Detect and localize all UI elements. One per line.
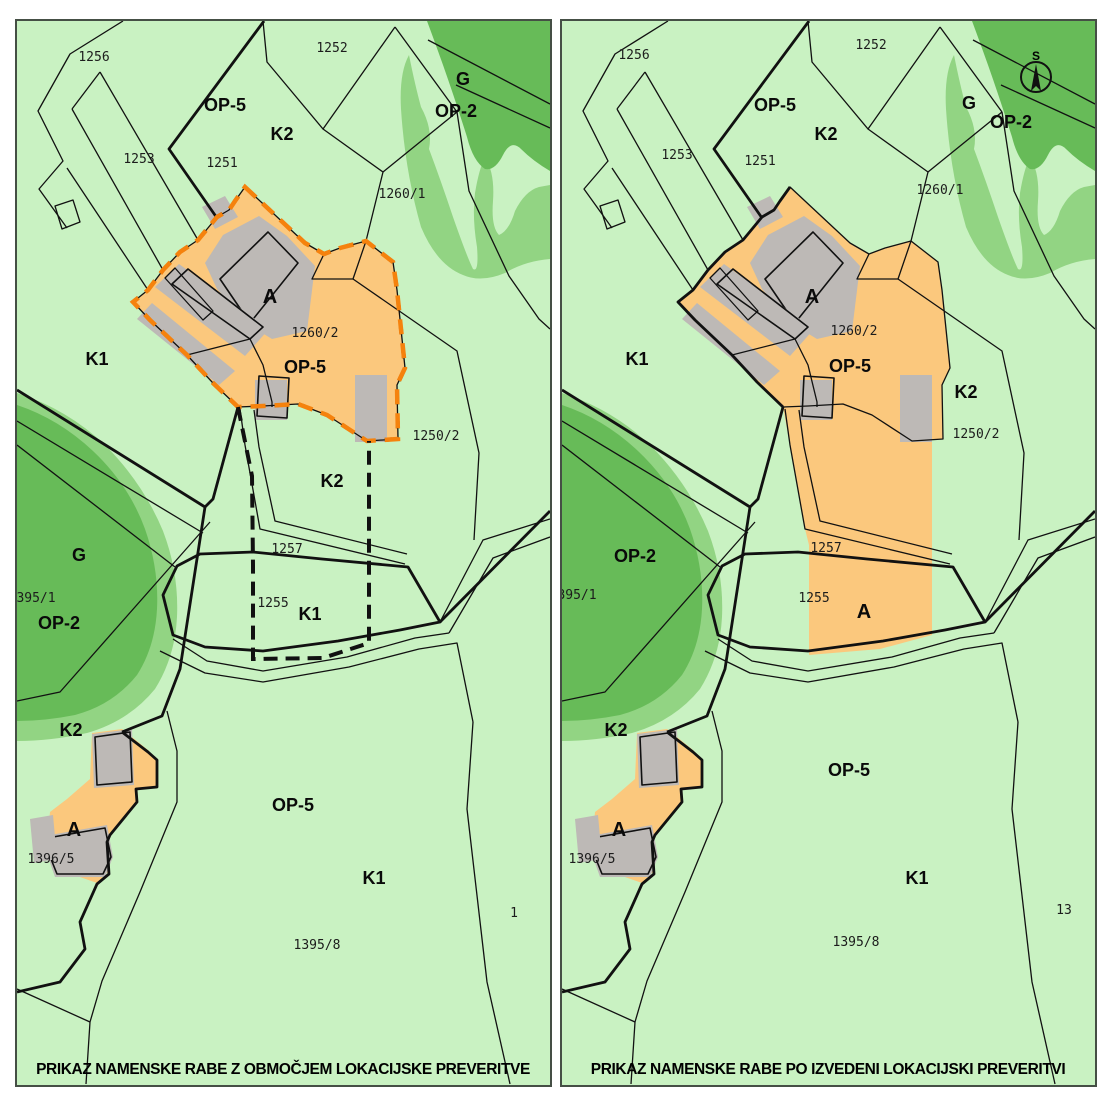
parcel-label-1255: 1255 <box>798 591 829 606</box>
zone-label-a-main: A <box>263 286 277 308</box>
right-map-svg: S OP-5 K2 G OP-2 K1 A OP-5 OP-2 K2 A K2 … <box>562 21 1095 1085</box>
parcel-label-1260-2: 1260/2 <box>831 324 878 339</box>
map-figure: OP-5 K2 G OP-2 K1 A OP-5 G OP-2 K2 K1 K2… <box>0 0 1108 1100</box>
parcel-label-1252: 1252 <box>855 38 886 53</box>
building <box>355 375 387 442</box>
parcel-label-1255: 1255 <box>257 596 288 611</box>
parcel-label-1250-2: 1250/2 <box>953 427 1000 442</box>
parcel-label-1260-1: 1260/1 <box>379 187 426 202</box>
panel-title-right: PRIKAZ NAMENSKE RABE PO IZVEDENI LOKACIJ… <box>591 1061 1066 1078</box>
zone-label-g-ne: G <box>456 69 470 89</box>
parcel-label-1396-5: 1396/5 <box>569 852 616 867</box>
parcel-label-1256: 1256 <box>618 48 649 63</box>
parcel-label-1257: 1257 <box>271 542 302 557</box>
zone-label-k1-oval: K1 <box>298 604 321 624</box>
zone-label-k1-south: K1 <box>362 868 385 888</box>
zone-label-a-sw: A <box>612 819 626 841</box>
zone-label-a-main: A <box>805 286 819 308</box>
parcel-label-1250-2: 1250/2 <box>413 429 460 444</box>
zone-label-k2-mid: K2 <box>320 471 343 491</box>
zone-label-op5-south: OP-5 <box>828 760 870 780</box>
zone-label-op5-south: OP-5 <box>272 795 314 815</box>
parcel-label-1256: 1256 <box>78 50 109 65</box>
zone-label-op2-west: OP-2 <box>38 613 80 633</box>
building <box>900 375 932 442</box>
parcel-label-1253: 1253 <box>661 148 692 163</box>
parcel-label-1260-2: 1260/2 <box>292 326 339 341</box>
parcel-label-1260-1: 1260/1 <box>917 183 964 198</box>
parcel-label-1251: 1251 <box>744 154 775 169</box>
zone-label-k2-sw: K2 <box>59 720 82 740</box>
parcel-label-1396-5: 1396/5 <box>28 852 75 867</box>
parcel-label-1257: 1257 <box>810 541 841 556</box>
zone-label-op5-top: OP-5 <box>204 95 246 115</box>
parcel-label-1252: 1252 <box>316 41 347 56</box>
parcel-label-395-1: 395/1 <box>562 588 597 603</box>
zone-label-op2-west: OP-2 <box>614 546 656 566</box>
zone-label-k1-south: K1 <box>905 868 928 888</box>
zone-label-k1-west: K1 <box>85 349 108 369</box>
zone-label-k2-ne2: K2 <box>954 382 977 402</box>
zone-label-a-oval: A <box>857 601 871 623</box>
parcel-label-1253: 1253 <box>123 152 154 167</box>
zone-label-op2-ne: OP-2 <box>435 101 477 121</box>
zone-label-op2-ne: OP-2 <box>990 112 1032 132</box>
compass-north-label: S <box>1032 49 1040 63</box>
left-map-svg: OP-5 K2 G OP-2 K1 A OP-5 G OP-2 K2 K1 K2… <box>17 21 550 1085</box>
zone-label-op5-top: OP-5 <box>754 95 796 115</box>
panel-title-left: PRIKAZ NAMENSKE RABE Z OBMOČJEM LOKACIJS… <box>36 1060 530 1078</box>
parcel-label-1395-8: 1395/8 <box>294 938 341 953</box>
right-map-panel: S OP-5 K2 G OP-2 K1 A OP-5 OP-2 K2 A K2 … <box>560 19 1097 1087</box>
zone-label-op5-main: OP-5 <box>829 356 871 376</box>
parcel-label-1395-8: 1395/8 <box>833 935 880 950</box>
left-map-panel: OP-5 K2 G OP-2 K1 A OP-5 G OP-2 K2 K1 K2… <box>15 19 552 1087</box>
zone-label-k2-sw: K2 <box>604 720 627 740</box>
zone-label-k2-top: K2 <box>270 124 293 144</box>
zone-label-g-ne: G <box>962 93 976 113</box>
zone-label-op5-main: OP-5 <box>284 357 326 377</box>
zone-label-g-west: G <box>72 545 86 565</box>
zone-label-k1-west: K1 <box>625 349 648 369</box>
parcel-label-edge: 1 <box>510 906 518 921</box>
zone-label-a-sw: A <box>67 819 81 841</box>
parcel-label-395-1: 395/1 <box>17 591 56 606</box>
parcel-label-edge: 13 <box>1056 903 1072 918</box>
parcel-label-1251: 1251 <box>206 156 237 171</box>
zone-label-k2-top: K2 <box>814 124 837 144</box>
